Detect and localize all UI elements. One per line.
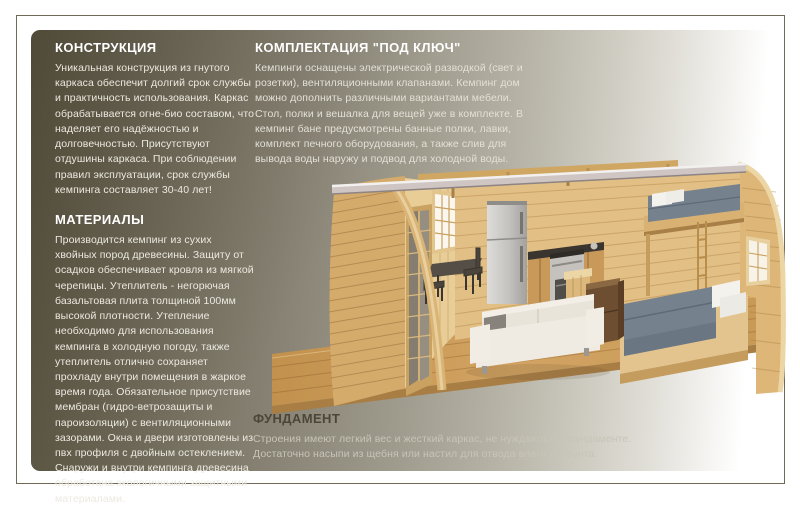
foundation-heading: ФУНДАМЕНТ xyxy=(253,411,673,426)
construction-body: Уникальная конструкция из гнутого каркас… xyxy=(55,61,255,198)
left-text-column: КОНСТРУКЦИЯ Уникальная конструкция из гн… xyxy=(55,40,255,507)
section-foundation: ФУНДАМЕНТ Строения имеют легкий вес и же… xyxy=(253,411,673,462)
foundation-text-block: ФУНДАМЕНТ Строения имеют легкий вес и же… xyxy=(253,411,673,462)
materials-heading: МАТЕРИАЛЫ xyxy=(55,212,255,227)
turnkey-body: Кемпинги оснащены электрической разводко… xyxy=(255,61,527,168)
section-turnkey: КОМПЛЕКТАЦИЯ "ПОД КЛЮЧ" Кемпинги оснащен… xyxy=(255,40,527,168)
foundation-body: Строения имеют легкий вес и жесткий карк… xyxy=(253,432,665,462)
construction-heading: КОНСТРУКЦИЯ xyxy=(55,40,255,55)
section-construction: КОНСТРУКЦИЯ Уникальная конструкция из гн… xyxy=(55,40,255,198)
section-materials: МАТЕРИАЛЫ Производится кемпинг из сухих … xyxy=(55,212,255,507)
turnkey-text-column: КОМПЛЕКТАЦИЯ "ПОД КЛЮЧ" Кемпинги оснащен… xyxy=(255,40,527,168)
materials-body: Производится кемпинг из сухих хвойных по… xyxy=(55,233,255,507)
turnkey-heading: КОМПЛЕКТАЦИЯ "ПОД КЛЮЧ" xyxy=(255,40,527,55)
